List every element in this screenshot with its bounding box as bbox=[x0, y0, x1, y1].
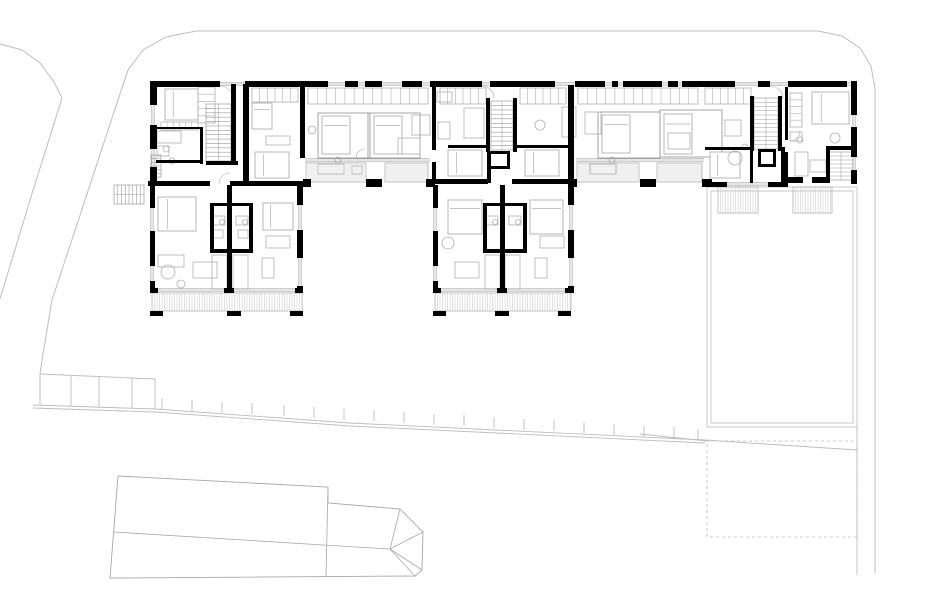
floor-plan-canvas bbox=[0, 0, 940, 594]
fence bbox=[33, 374, 857, 450]
neighbor-building bbox=[110, 476, 423, 578]
floor-plan-page bbox=[0, 0, 940, 594]
staircases bbox=[114, 98, 853, 204]
garden-plots bbox=[640, 187, 857, 575]
